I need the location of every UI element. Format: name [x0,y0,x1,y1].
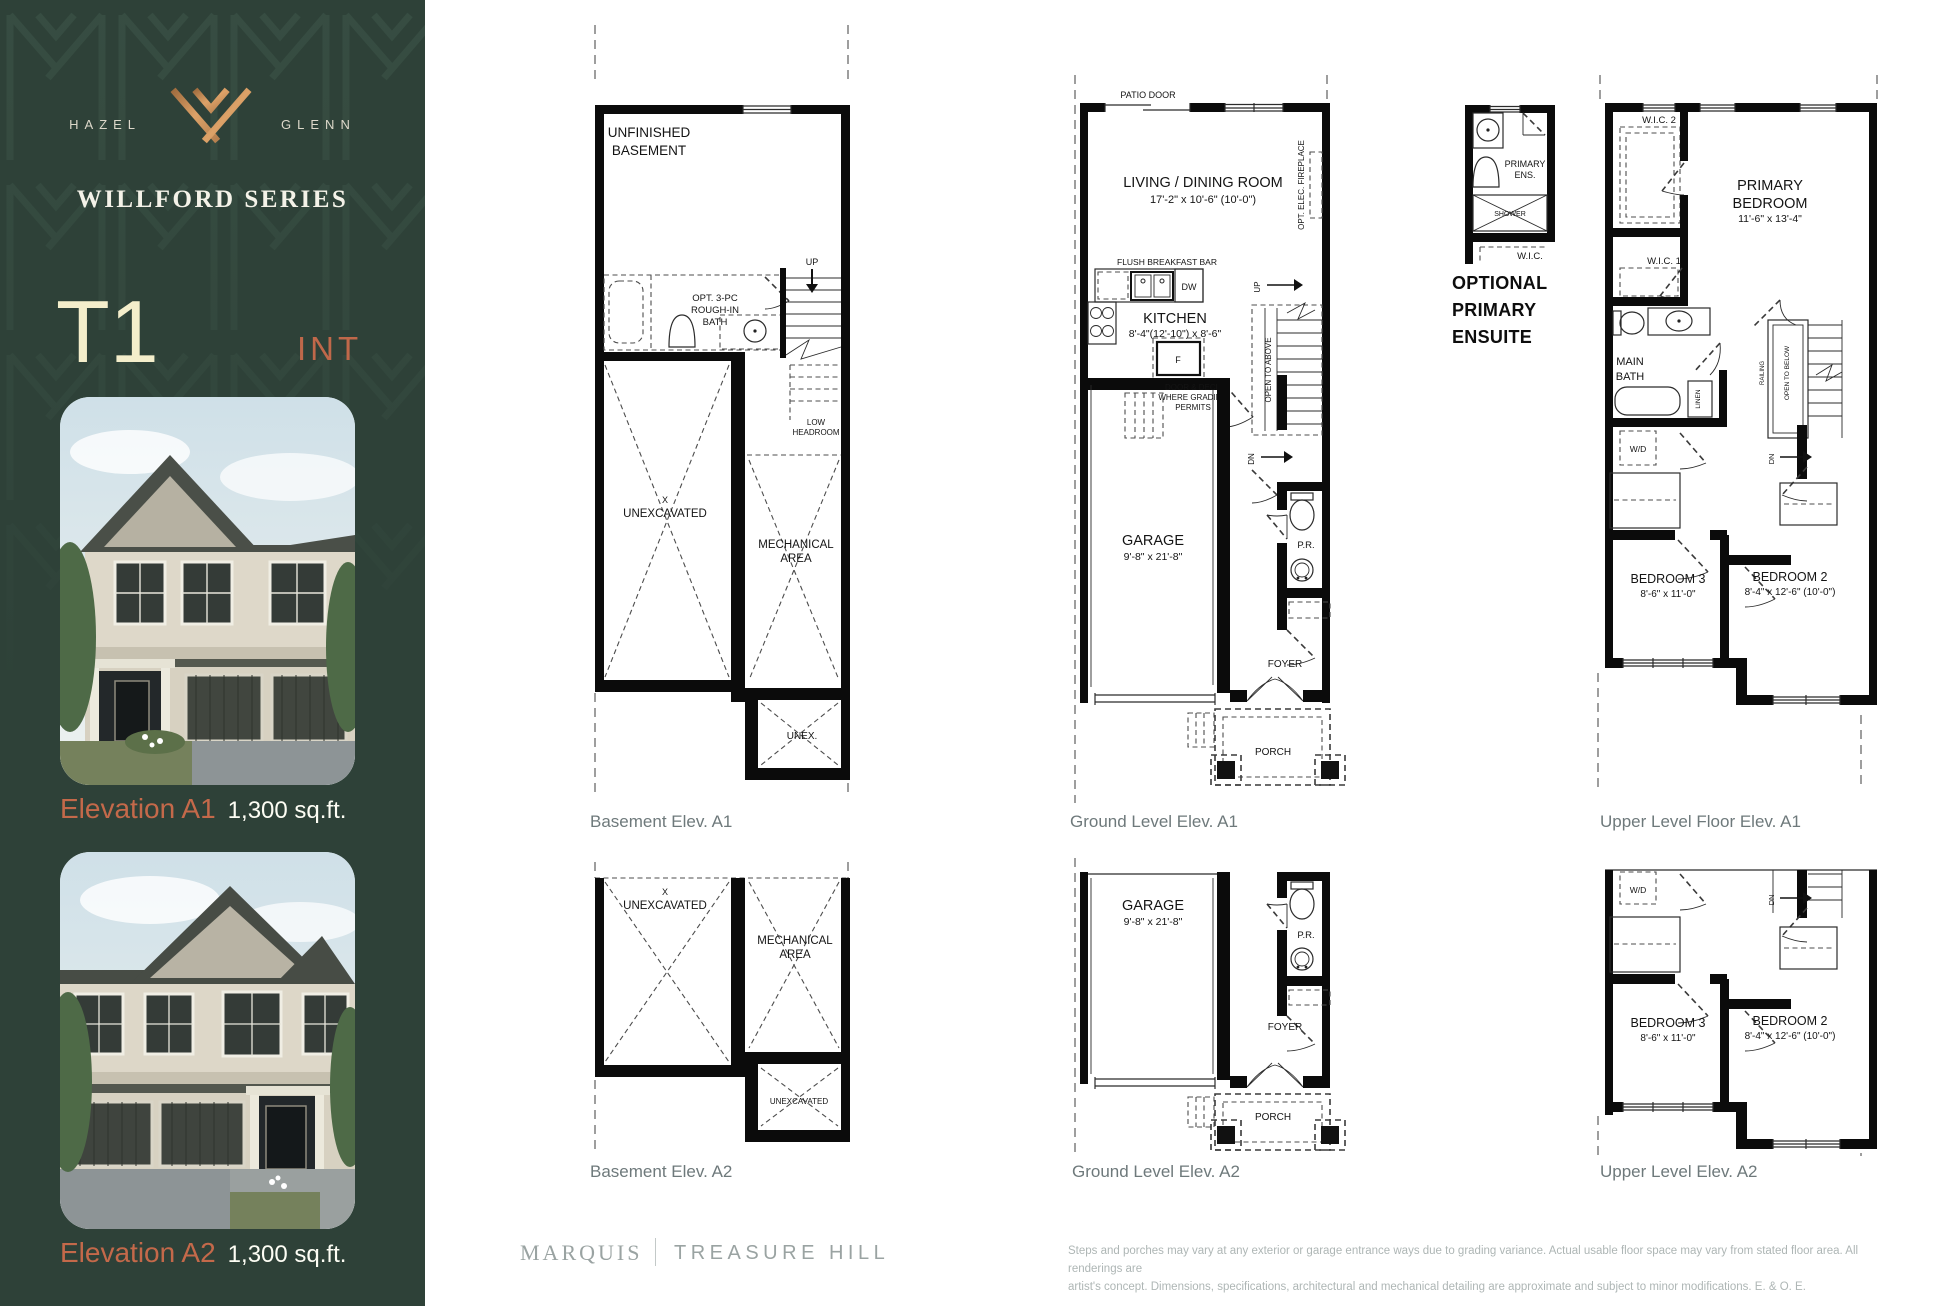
svg-text:BEDROOM 3: BEDROOM 3 [1630,1016,1705,1030]
basement-a1-caption: Basement Elev. A1 [590,812,732,832]
elevation-a1-illustration [60,397,355,785]
svg-text:BATH: BATH [703,317,728,328]
svg-text:W/D: W/D [1630,885,1647,895]
svg-text:LINEN: LINEN [1695,389,1702,408]
svg-text:OPT. ELEC. FIREPLACE: OPT. ELEC. FIREPLACE [1297,140,1306,230]
elevation-a1-image [60,397,355,785]
svg-text:SHOWER: SHOWER [1494,211,1526,218]
brand-logo: HAZEL GLENN [0,86,425,162]
ground-a2-plan: GARAGE 9'-8" x 21'-8" P.R. FOYER PORCH [1055,858,1355,1158]
elevation-a1-sqft: 1,300 sq.ft. [228,797,347,825]
ground-a2-caption: Ground Level Elev. A2 [1072,1162,1240,1182]
svg-text:DN: DN [1247,453,1256,465]
svg-text:8'-6" x 11'-0": 8'-6" x 11'-0" [1640,589,1696,600]
elevation-a1-name: Elevation A1 [60,793,216,825]
svg-text:MECHANICAL: MECHANICAL [757,935,833,947]
svg-text:LOW: LOW [807,418,826,427]
svg-text:GARAGE: GARAGE [1122,533,1184,549]
treasure-hill-logo: TREASURE HILL [674,1242,889,1265]
upper-a1-caption: Upper Level Floor Elev. A1 [1600,812,1801,832]
upper-a2-caption: Upper Level Elev. A2 [1600,1162,1758,1182]
basement-a2-plan: X UNEXCAVATED MECHANICAL AREA UNEXCAVATE… [565,862,865,1162]
svg-text:8'-4" x 12'-6" (10'-0"): 8'-4" x 12'-6" (10'-0") [1745,1031,1836,1042]
basement-a2-caption: Basement Elev. A2 [590,1162,732,1182]
svg-text:FOYER: FOYER [1268,659,1302,670]
svg-text:OPT. 3-PC: OPT. 3-PC [692,293,738,304]
svg-text:DN: DN [1767,895,1776,906]
svg-text:9'-8" x 21'-8": 9'-8" x 21'-8" [1124,916,1183,928]
disclaimer-line2: artist's concept. Dimensions, specificat… [1068,1281,1806,1293]
elevation-a2-sqft: 1,300 sq.ft. [228,1241,347,1269]
elevation-a2-illustration [60,852,355,1229]
ground-a1-caption: Ground Level Elev. A1 [1070,812,1238,832]
svg-text:UNEX.: UNEX. [787,731,818,742]
svg-text:UNFINISHED: UNFINISHED [608,125,691,140]
svg-text:8'-4" x 12'-6" (10'-0"): 8'-4" x 12'-6" (10'-0") [1745,587,1836,598]
svg-text:BEDROOM 2: BEDROOM 2 [1752,570,1827,584]
hazel-glenn-monogram-icon [163,86,259,162]
svg-text:MECHANICAL: MECHANICAL [758,539,834,551]
svg-text:PERMITS: PERMITS [1175,403,1211,412]
svg-text:W/D: W/D [1630,444,1647,454]
brand-right: GLENN [281,117,356,132]
svg-text:9'-8" x 21'-8": 9'-8" x 21'-8" [1124,551,1183,563]
svg-text:UNEXCAVATED: UNEXCAVATED [623,508,707,520]
ensuite-plan: PRIMARY ENS. SHOWER W.I.C. [1445,95,1575,285]
elevation-a1-label-row: Elevation A1 1,300 sq.ft. [60,793,346,825]
model-type: INT [297,330,362,368]
ensuite-title: OPTIONAL PRIMARY ENSUITE [1452,270,1547,351]
svg-text:HEADROOM: HEADROOM [792,428,839,437]
svg-text:BEDROOM 2: BEDROOM 2 [1752,1014,1827,1028]
ensuite-title-line1: OPTIONAL [1452,270,1547,297]
svg-text:P.R.: P.R. [1297,540,1314,551]
svg-text:MAIN: MAIN [1616,356,1644,368]
series-title: WILLFORD SERIES [0,186,425,214]
svg-text:8'-4"(12'-10") x 8'-6": 8'-4"(12'-10") x 8'-6" [1129,328,1222,340]
svg-text:PRIMARY: PRIMARY [1505,159,1546,169]
svg-text:BASEMENT: BASEMENT [612,143,686,158]
svg-text:ENS.: ENS. [1514,170,1535,180]
svg-text:BATH: BATH [1616,371,1645,383]
svg-text:OPEN TO ABOVE: OPEN TO ABOVE [1264,337,1273,402]
svg-text:8'-6" x 11'-0": 8'-6" x 11'-0" [1640,1033,1696,1044]
svg-text:PORCH: PORCH [1255,1112,1291,1123]
elevation-a2-name: Elevation A2 [60,1237,216,1269]
svg-text:BEDROOM 3: BEDROOM 3 [1630,572,1705,586]
disclaimer-line1: Steps and porches may vary at any exteri… [1068,1245,1858,1275]
svg-text:W.I.C.: W.I.C. [1517,251,1543,262]
svg-text:RAILING: RAILING [1760,361,1766,385]
svg-text:F: F [1175,355,1181,365]
svg-text:11'-6" x 13'-4": 11'-6" x 13'-4" [1738,213,1802,225]
ensuite-title-line2: PRIMARY [1452,297,1547,324]
svg-text:KITCHEN: KITCHEN [1143,311,1207,327]
svg-text:UP: UP [806,257,819,267]
svg-text:PORCH: PORCH [1255,747,1291,758]
elevation-a2-image [60,852,355,1229]
model-name: T1 [56,288,159,376]
marquis-logo: MARQUIS [520,1240,642,1266]
svg-text:PATIO DOOR: PATIO DOOR [1120,90,1176,100]
upper-a1-plan: W.I.C. 2 PRIMARY BEDROOM 11'-6" x 13'-4"… [1580,75,1890,815]
svg-text:GARAGE: GARAGE [1122,898,1184,914]
svg-text:OPEN TO BELOW: OPEN TO BELOW [1784,345,1791,400]
svg-text:FOYER: FOYER [1268,1022,1302,1033]
svg-text:BEDROOM: BEDROOM [1733,196,1808,212]
svg-text:W.I.C. 1: W.I.C. 1 [1647,256,1681,267]
brochure-page: HAZEL GLENN WILLFORD SERIES T1 INT [0,0,1960,1306]
footer-divider [655,1238,656,1266]
upper-a2-plan: W/D DN BEDROOM 3 8'-6" x 11'-0" BEDROOM … [1580,858,1890,1158]
elevation-a2-label-row: Elevation A2 1,300 sq.ft. [60,1237,346,1269]
svg-text:ROUGH-IN: ROUGH-IN [691,305,739,316]
ground-a1-plan: PATIO DOOR LIVING / DINING ROOM 17'-2" x… [1055,75,1355,815]
svg-text:FLUSH BREAKFAST BAR: FLUSH BREAKFAST BAR [1117,257,1217,267]
svg-text:17'-2" x 10'-6" (10'-0"): 17'-2" x 10'-6" (10'-0") [1150,194,1256,206]
svg-text:UP: UP [1253,281,1262,292]
brand-left: HAZEL [69,117,141,132]
svg-text:UNEXCAVATED: UNEXCAVATED [623,900,707,912]
svg-text:AREA: AREA [779,949,811,961]
svg-text:AREA: AREA [780,553,812,565]
svg-text:DN: DN [1767,454,1776,465]
sidebar: HAZEL GLENN WILLFORD SERIES T1 INT [0,0,425,1306]
svg-text:P.R.: P.R. [1297,930,1314,941]
svg-text:LIVING / DINING ROOM: LIVING / DINING ROOM [1123,175,1283,191]
svg-text:PRIMARY: PRIMARY [1737,178,1803,194]
svg-text:X: X [662,887,668,897]
svg-text:DW: DW [1182,282,1197,292]
disclaimer-text: Steps and porches may vary at any exteri… [1068,1243,1868,1296]
ensuite-title-line3: ENSUITE [1452,324,1547,351]
svg-text:W.I.C. 2: W.I.C. 2 [1642,115,1676,126]
svg-text:UNEXCAVATED: UNEXCAVATED [770,1097,828,1106]
svg-text:X: X [662,495,668,505]
basement-a1-plan: UNFINISHED BASEMENT OPT. 3-PC ROUGH-IN B… [565,25,865,825]
